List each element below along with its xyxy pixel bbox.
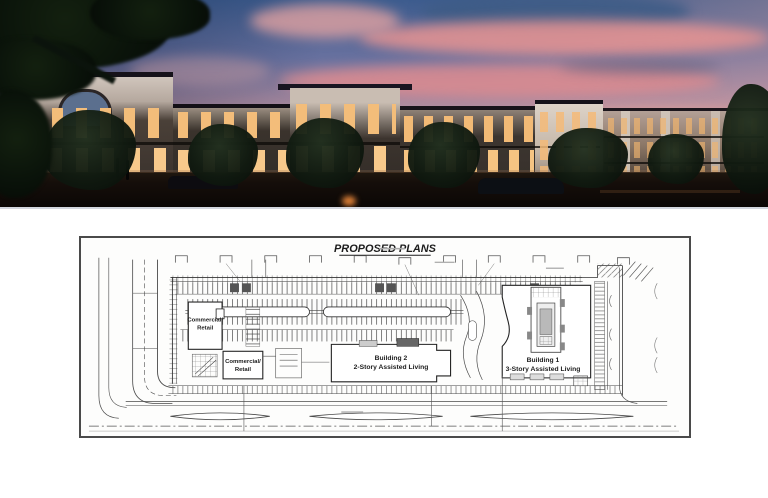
building-1-footprint: Building 1 3-Story Assisted Living (502, 285, 590, 385)
street-reflection (600, 190, 740, 193)
curved-driveway (461, 291, 485, 380)
bottom-road (89, 376, 679, 431)
right-landscape-strip (595, 268, 658, 404)
document-page: PROPOSED PLANS (0, 0, 768, 498)
cloud (560, 60, 720, 74)
cloud (250, 4, 400, 38)
building-2-footprint: Building 2 2-Story Assisted Living (331, 338, 450, 381)
svg-text:Commercial/: Commercial/ (187, 318, 223, 324)
tree-silhouette (188, 124, 258, 186)
svg-text:3-Story Assisted Living: 3-Story Assisted Living (506, 366, 581, 373)
tree-silhouette (548, 128, 628, 188)
svg-text:Retail: Retail (197, 326, 214, 332)
svg-text:Commercial/: Commercial/ (225, 359, 261, 365)
entry-court (263, 348, 330, 378)
site-plan-frame: PROPOSED PLANS (79, 236, 691, 438)
svg-text:Building 1: Building 1 (527, 357, 560, 364)
architectural-rendering (0, 0, 768, 209)
site-plan-drawing: PROPOSED PLANS (81, 238, 689, 436)
left-road (99, 258, 176, 419)
tree-silhouette (648, 134, 704, 184)
tree-silhouette (408, 122, 480, 188)
street-light-glow (342, 196, 356, 206)
cloud (360, 20, 768, 56)
commercial-retail-1-footprint: Commercial/ Retail (187, 302, 224, 349)
car-silhouette (478, 178, 564, 194)
svg-text:Building 2: Building 2 (375, 355, 408, 362)
corner-plaza (192, 354, 217, 377)
svg-text:2-Story Assisted Living: 2-Story Assisted Living (354, 364, 429, 371)
svg-text:Retail: Retail (235, 367, 252, 373)
commercial-retail-2-footprint: Commercial/ Retail (223, 351, 263, 379)
tree-silhouette (44, 110, 136, 190)
tree-silhouette (286, 118, 364, 188)
